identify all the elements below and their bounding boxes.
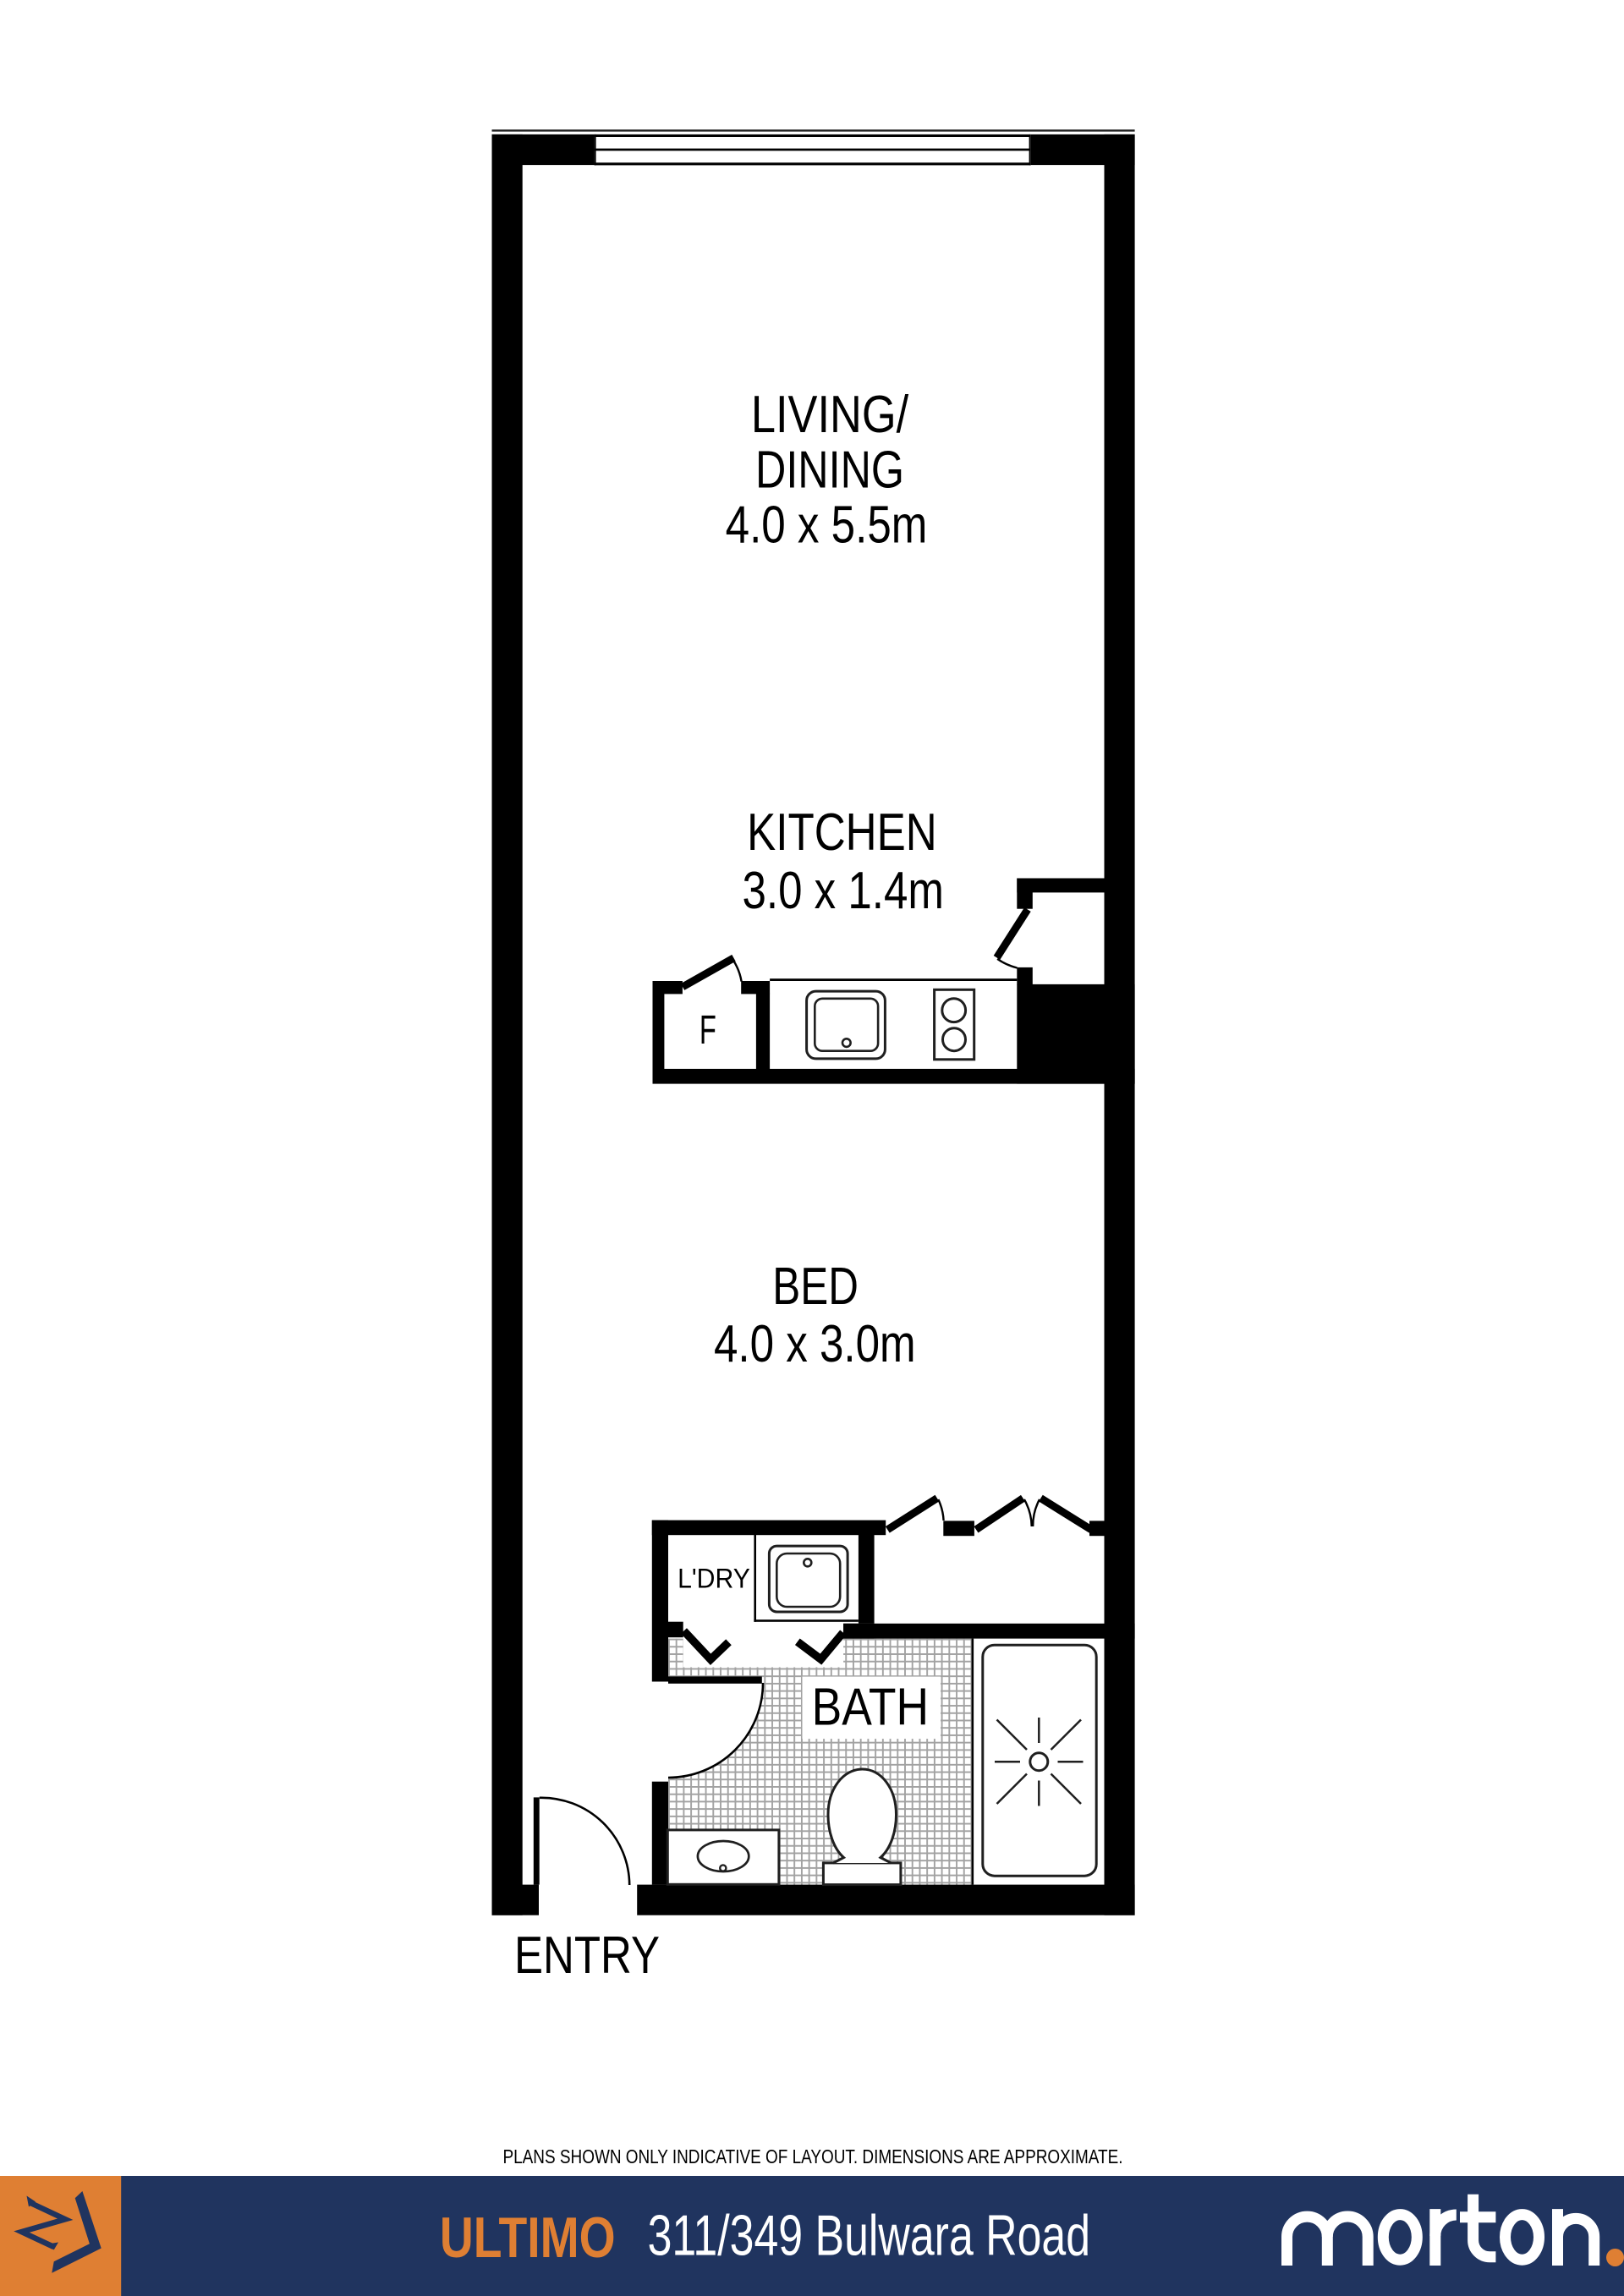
svg-text:LIVING/: LIVING/ [751, 386, 909, 444]
svg-text:BED: BED [772, 1258, 859, 1316]
svg-text:ULTIMO: ULTIMO [440, 2206, 616, 2270]
svg-text:BATH: BATH [812, 1678, 930, 1736]
svg-text:L'DRY: L'DRY [678, 1563, 750, 1593]
svg-text:DINING: DINING [755, 441, 904, 500]
svg-text:ENTRY: ENTRY [514, 1926, 660, 1985]
svg-text:PLANS SHOWN ONLY INDICATIVE OF: PLANS SHOWN ONLY INDICATIVE OF LAYOUT. D… [503, 2145, 1123, 2167]
svg-text:4.0 x 5.5m: 4.0 x 5.5m [726, 496, 928, 555]
svg-text:F: F [700, 1008, 716, 1053]
svg-text:4.0 x 3.0m: 4.0 x 3.0m [714, 1315, 916, 1373]
svg-text:3.0 x 1.4m: 3.0 x 1.4m [743, 862, 944, 920]
svg-text:KITCHEN: KITCHEN [747, 803, 937, 862]
svg-text:311/349 Bulwara Road: 311/349 Bulwara Road [648, 2204, 1091, 2268]
